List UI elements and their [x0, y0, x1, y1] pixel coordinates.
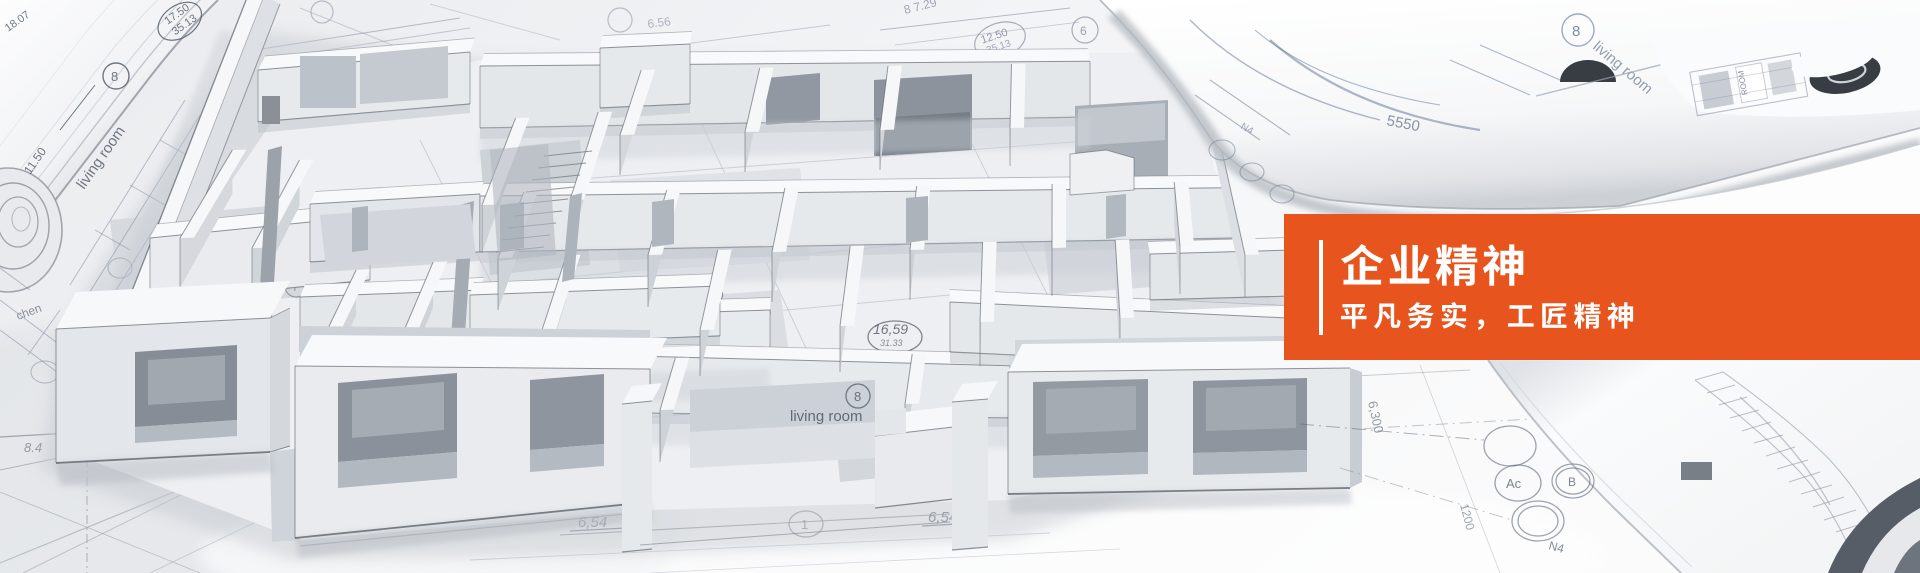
- svg-text:B: B: [1568, 475, 1576, 489]
- svg-text:8.4: 8.4: [24, 440, 42, 455]
- svg-text:8: 8: [1572, 23, 1580, 40]
- svg-text:Ac: Ac: [1506, 476, 1522, 491]
- svg-text:31.33: 31.33: [880, 338, 903, 348]
- svg-text:16,59: 16,59: [873, 321, 908, 337]
- svg-text:8: 8: [111, 69, 118, 84]
- svg-text:8: 8: [854, 389, 861, 404]
- svg-text:6.56: 6.56: [647, 14, 672, 31]
- svg-text:6: 6: [1080, 24, 1087, 38]
- svg-text:living room: living room: [790, 408, 863, 425]
